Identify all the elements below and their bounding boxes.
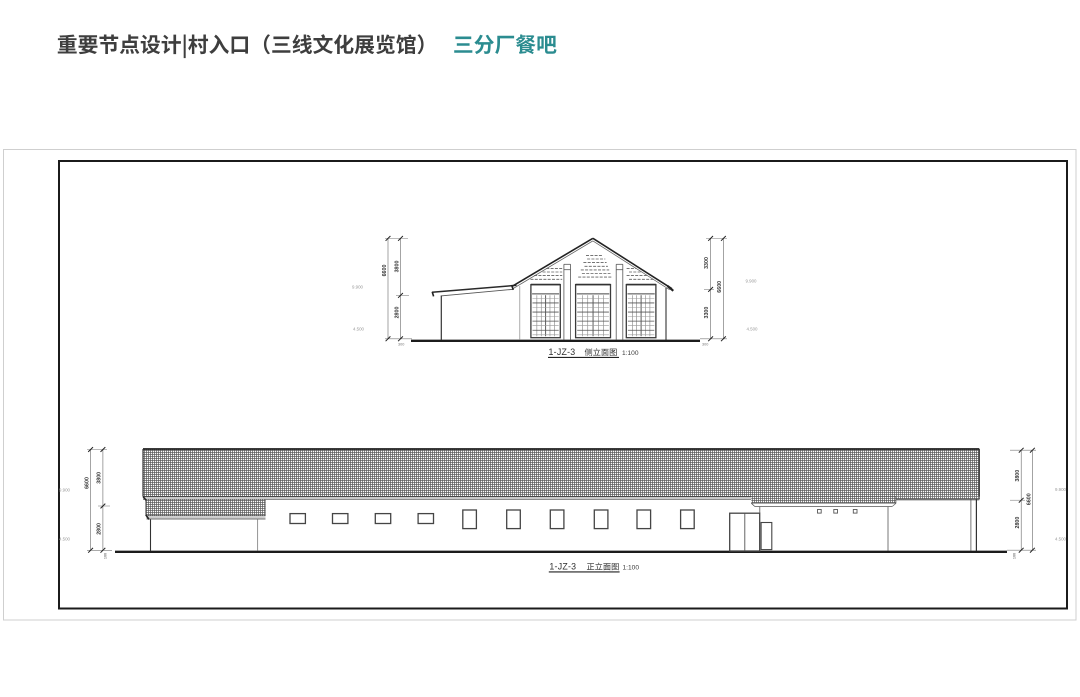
- svg-text:1-JZ-3: 1-JZ-3: [549, 347, 576, 357]
- svg-text:4.500: 4.500: [747, 327, 759, 332]
- svg-text:9.900: 9.900: [352, 285, 364, 290]
- svg-text:1:100: 1:100: [622, 350, 639, 357]
- svg-text:2800: 2800: [394, 307, 400, 319]
- svg-text:3800: 3800: [394, 261, 400, 273]
- svg-text:3300: 3300: [704, 257, 710, 269]
- svg-text:300: 300: [702, 343, 708, 347]
- svg-text:100: 100: [103, 553, 107, 559]
- svg-text:100: 100: [1013, 553, 1017, 559]
- svg-text:4.500: 4.500: [59, 537, 71, 542]
- svg-text:4.500: 4.500: [353, 327, 365, 332]
- svg-text:2800: 2800: [1015, 517, 1021, 529]
- svg-text:6600: 6600: [1027, 493, 1033, 505]
- svg-text:4.500: 4.500: [1055, 537, 1067, 542]
- svg-text:9.900: 9.900: [59, 488, 71, 493]
- svg-text:1:100: 1:100: [623, 564, 640, 571]
- svg-text:9.900: 9.900: [746, 279, 758, 284]
- svg-text:3800: 3800: [97, 472, 103, 484]
- svg-text:1-JZ-3: 1-JZ-3: [549, 562, 576, 572]
- svg-text:300: 300: [398, 343, 404, 347]
- svg-text:2800: 2800: [97, 523, 103, 535]
- svg-text:6600: 6600: [717, 281, 723, 293]
- svg-text:6600: 6600: [382, 265, 388, 277]
- svg-text:3800: 3800: [1015, 470, 1021, 482]
- svg-text:3300: 3300: [704, 307, 710, 319]
- svg-text:6600: 6600: [84, 477, 90, 489]
- svg-text:9.900: 9.900: [1055, 487, 1067, 492]
